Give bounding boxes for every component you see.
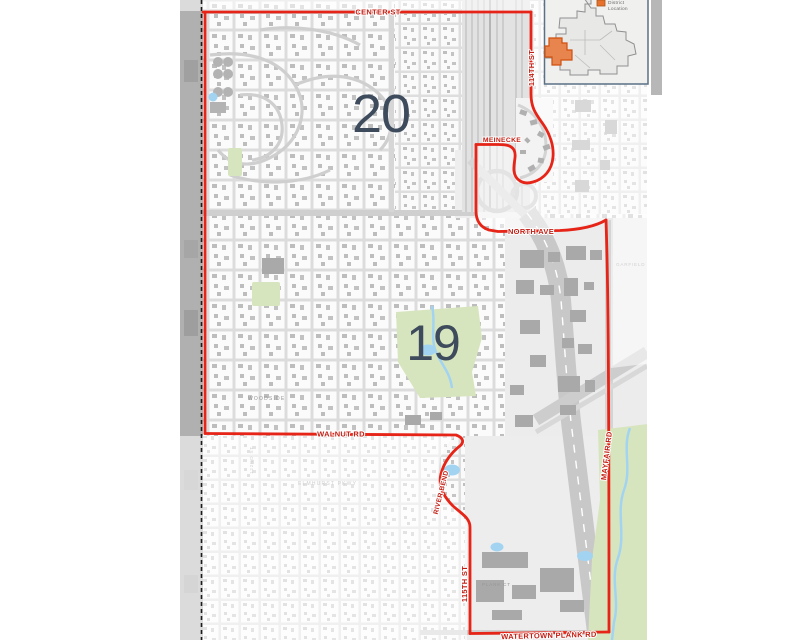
district-number-19: 19 (406, 315, 460, 371)
inset-legend-line2: Location (608, 6, 628, 12)
inset-side-strip (651, 0, 662, 95)
district-number-20: 20 (352, 84, 410, 144)
inset-legend-swatch (597, 0, 605, 6)
street-label-center-st: CENTER ST (355, 8, 400, 17)
street-label-plank-ct: PLANK CT (482, 582, 511, 587)
street-label-115th-st: 115TH ST (460, 566, 469, 602)
street-label-114th-st: 114TH ST (527, 50, 536, 86)
street-label-walnut-rd: WALNUT RD (317, 430, 365, 439)
inset-legend-line1: District (608, 0, 625, 6)
street-label-meinecke: MEINECKE (483, 137, 521, 144)
district-map-canvas: WOODSIDE ELMHURST PKWY 122ND ST GARFIELD… (0, 0, 800, 640)
street-label-woodside: WOODSIDE (248, 396, 285, 402)
inset-locator-map: District Location (545, 0, 663, 95)
street-label-north-ave: NORTH AVE (508, 227, 554, 236)
map-page: WOODSIDE ELMHURST PKWY 122ND ST GARFIELD… (0, 0, 800, 640)
street-label-watertown-plank-rd: WATERTOWN PLANK RD (501, 630, 597, 640)
